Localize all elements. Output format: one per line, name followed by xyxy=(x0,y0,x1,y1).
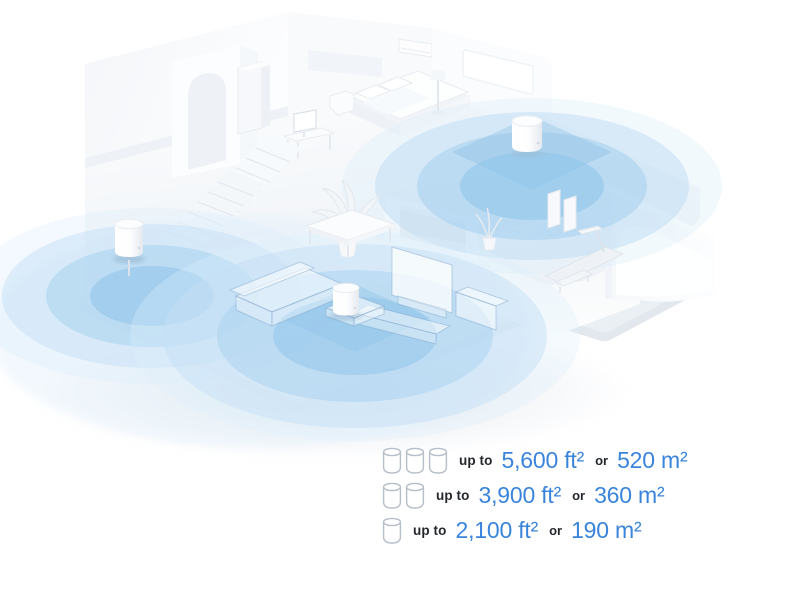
or-label: or xyxy=(572,488,585,503)
coverage-imperial: 3,900 ft² xyxy=(479,482,562,509)
wifi-unit-icon xyxy=(428,447,448,474)
up-to-label: up to xyxy=(436,488,470,503)
wardrobe xyxy=(238,62,270,134)
wifi-unit-icon xyxy=(405,447,425,474)
wifi-unit-icon xyxy=(382,482,402,509)
or-label: or xyxy=(549,523,562,538)
coverage-row-3-units: up to 5,600 ft² or 520 m² xyxy=(382,447,687,474)
up-to-label: up to xyxy=(459,453,493,468)
coverage-imperial: 2,100 ft² xyxy=(456,517,539,544)
coverage-metric: 520 m² xyxy=(617,447,687,474)
up-to-label: up to xyxy=(413,523,447,538)
wifi-coverage-living xyxy=(130,231,580,441)
coverage-row-2-units: up to 3,900 ft² or 360 m² xyxy=(382,482,687,509)
coverage-legend: up to 5,600 ft² or 520 m² up to 3,900 ft… xyxy=(382,447,687,544)
unit-count-icons xyxy=(382,482,425,509)
mesh-wifi-unit-living xyxy=(330,283,362,320)
unit-count-icons xyxy=(382,447,448,474)
or-label: or xyxy=(595,453,608,468)
wifi-unit-icon xyxy=(382,447,402,474)
coverage-row-1-unit: up to 2,100 ft² or 190 m² xyxy=(382,517,687,544)
coverage-imperial: 5,600 ft² xyxy=(502,447,585,474)
wifi-unit-icon xyxy=(382,517,402,544)
coverage-metric: 190 m² xyxy=(571,517,641,544)
coverage-metric: 360 m² xyxy=(594,482,664,509)
wifi-unit-icon xyxy=(405,482,425,509)
mesh-wifi-unit-upper xyxy=(510,116,544,158)
unit-count-icons xyxy=(382,517,402,544)
